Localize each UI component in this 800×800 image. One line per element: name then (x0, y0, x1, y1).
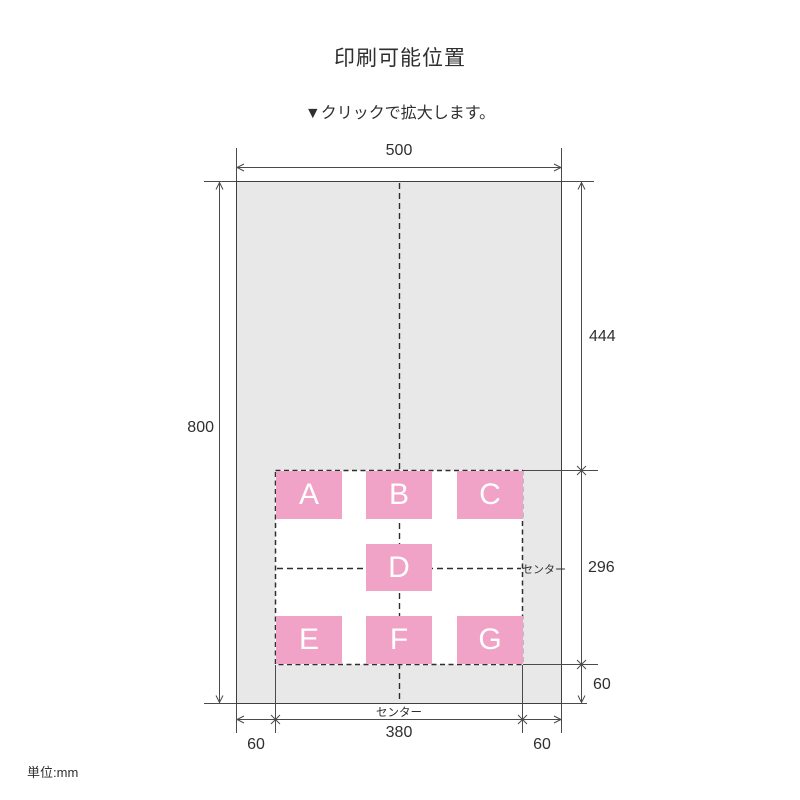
print-spot-d: D (366, 544, 432, 591)
dim-left-height-label: 800 (178, 419, 214, 437)
spot-label-f: F (390, 625, 408, 655)
center-mark-bottom: センター (376, 704, 422, 720)
print-position-figure[interactable]: 印刷可能位置 ▼クリックで拡大します。 (0, 0, 800, 800)
print-spot-a: A (276, 471, 342, 519)
spot-label-c: C (479, 480, 501, 510)
dim-bottom-center-label: 380 (386, 724, 413, 742)
dimension-lines-layer (0, 0, 800, 800)
dim-top-width-line (237, 164, 562, 171)
spot-label-b: B (389, 480, 409, 510)
unit-note: 単位:mm (27, 762, 78, 781)
spot-label-e: E (299, 625, 319, 655)
spot-label-d: D (388, 553, 410, 583)
print-spot-f: F (366, 616, 432, 664)
print-spot-g: G (457, 616, 523, 664)
dim-bottom-left-label: 60 (247, 736, 265, 754)
print-spot-e: E (276, 616, 342, 664)
print-spot-c: C (457, 471, 523, 519)
spot-label-a: A (299, 480, 319, 510)
dim-bottom-right-label: 60 (533, 736, 551, 754)
print-spot-b: B (366, 471, 432, 519)
dim-left-height-line (216, 182, 223, 703)
dim-right-middle-label: 296 (588, 559, 615, 577)
dim-right-top-label: 444 (589, 328, 616, 346)
dim-top-width-label: 500 (386, 142, 413, 160)
dim-right-stack-line (577, 182, 586, 703)
center-mark-right: センター (522, 561, 566, 577)
spot-label-g: G (478, 625, 501, 655)
dim-right-bottom-label: 60 (593, 676, 611, 694)
